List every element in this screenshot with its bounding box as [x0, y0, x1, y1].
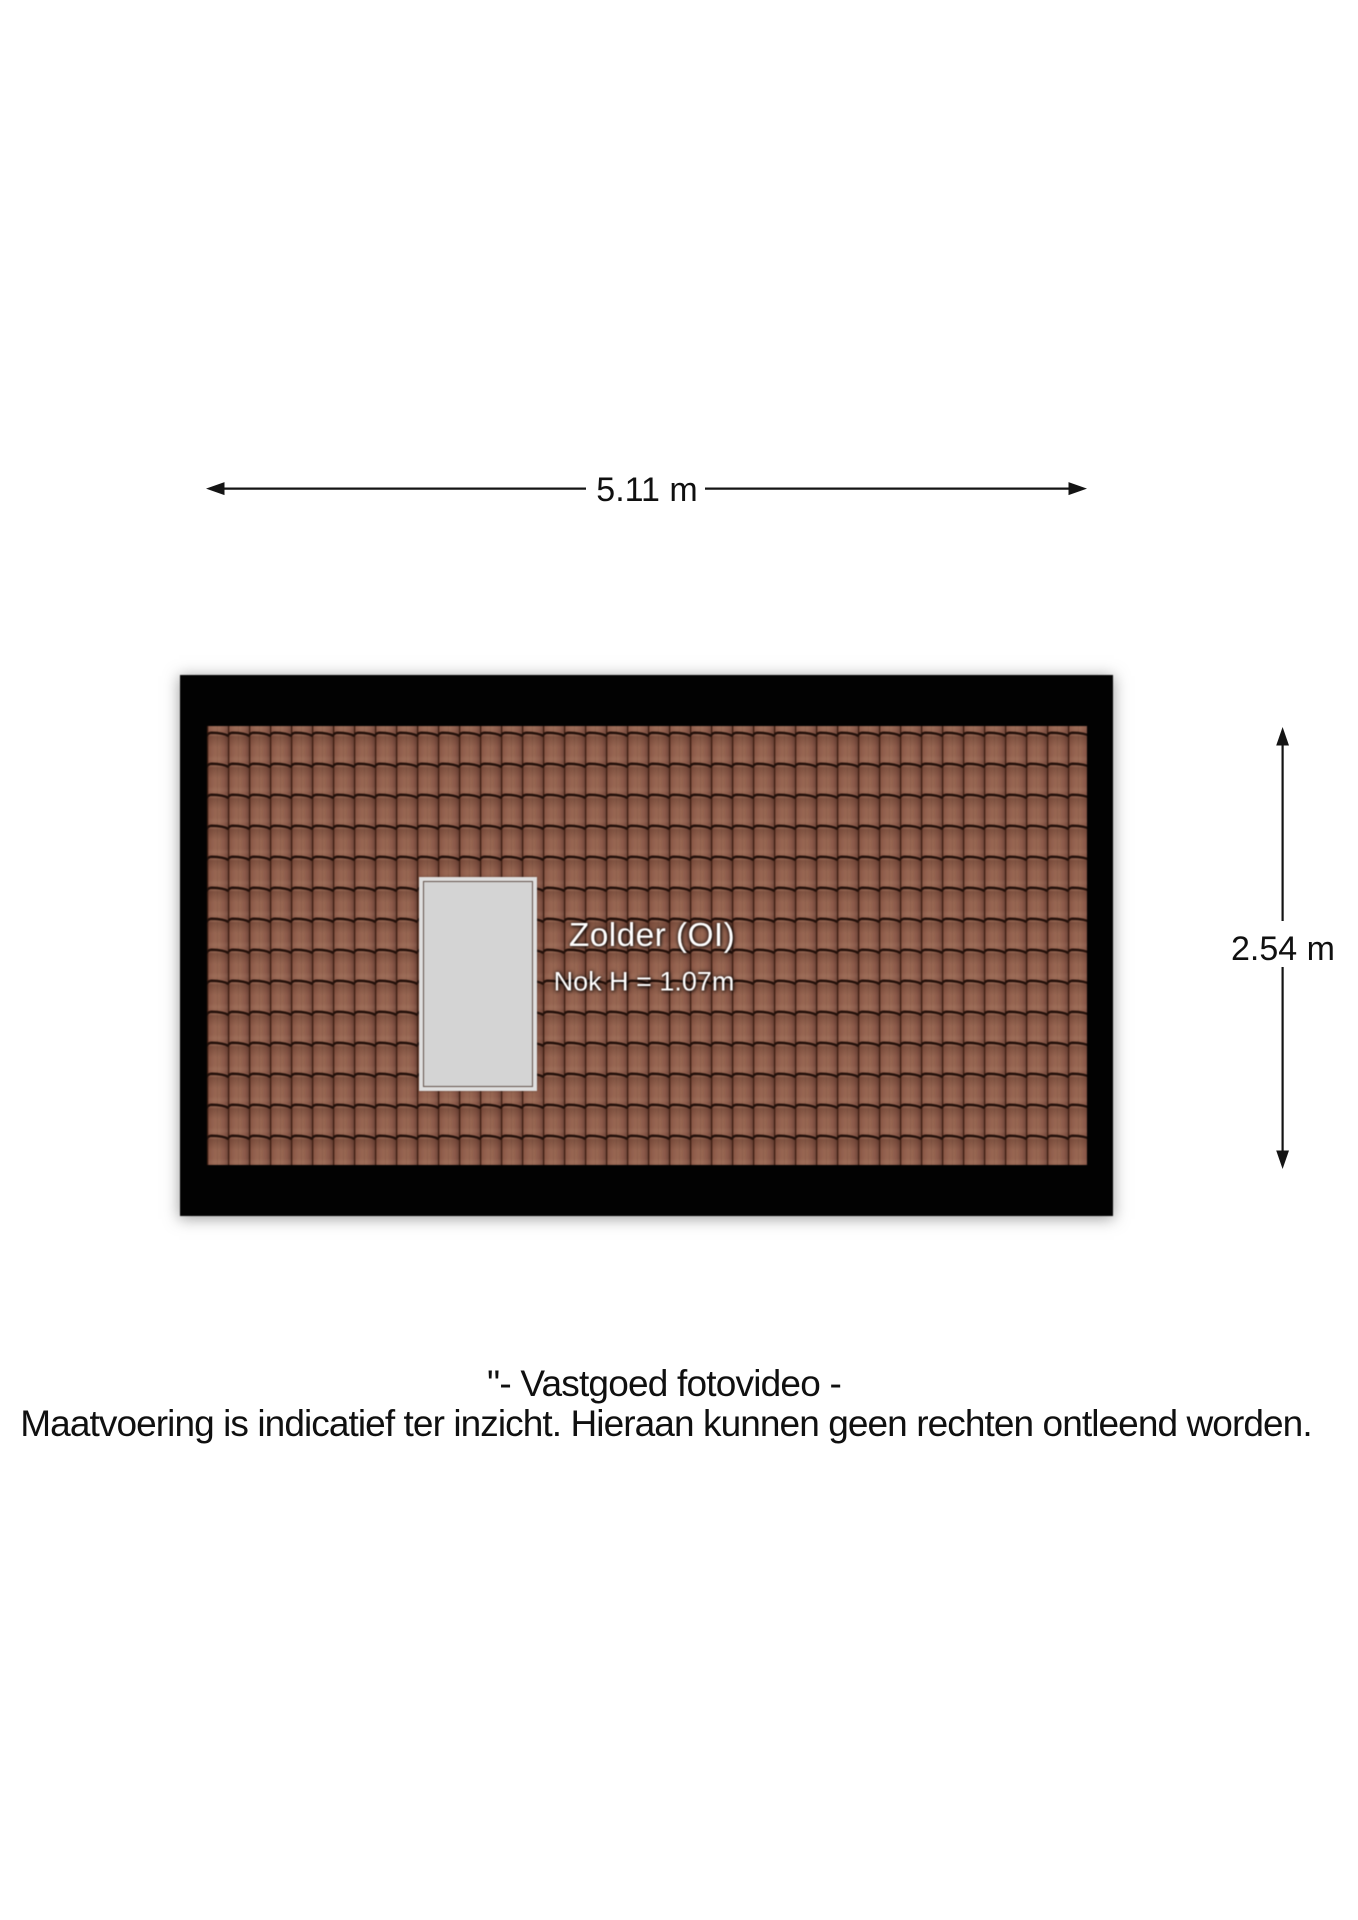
svg-text:Maatvoering is indicatief ter: Maatvoering is indicatief ter inzicht. H…: [20, 1403, 1311, 1444]
svg-text:"- Vastgoed fotovideo -: "- Vastgoed fotovideo -: [487, 1363, 841, 1404]
svg-text:2.54 m: 2.54 m: [1231, 930, 1335, 968]
svg-text:5.11 m: 5.11 m: [596, 471, 697, 509]
